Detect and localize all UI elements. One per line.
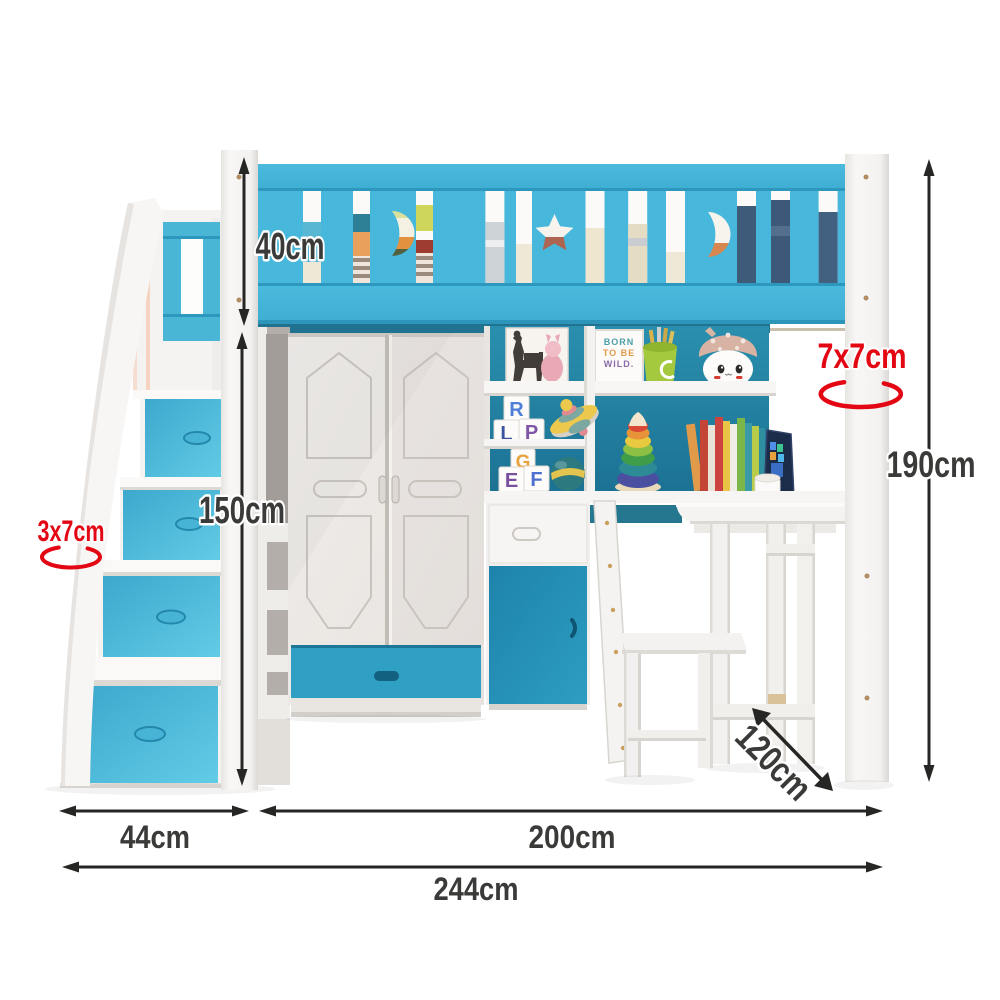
svg-text:200cm: 200cm (529, 819, 616, 855)
svg-text:F: F (530, 469, 542, 491)
svg-text:150cm: 150cm (199, 490, 285, 532)
svg-text:E: E (505, 470, 518, 492)
svg-text:40cm: 40cm (256, 226, 325, 268)
svg-text:190cm: 190cm (887, 444, 976, 485)
svg-text:WILD.: WILD. (604, 359, 635, 369)
svg-text:244cm: 244cm (434, 871, 519, 907)
svg-text:R: R (509, 399, 524, 421)
svg-text:TO BE: TO BE (603, 348, 635, 358)
svg-text:44cm: 44cm (120, 819, 190, 855)
svg-text:3x7cm: 3x7cm (38, 515, 105, 548)
svg-text:7x7cm: 7x7cm (818, 337, 907, 376)
svg-text:BORN: BORN (604, 337, 635, 347)
